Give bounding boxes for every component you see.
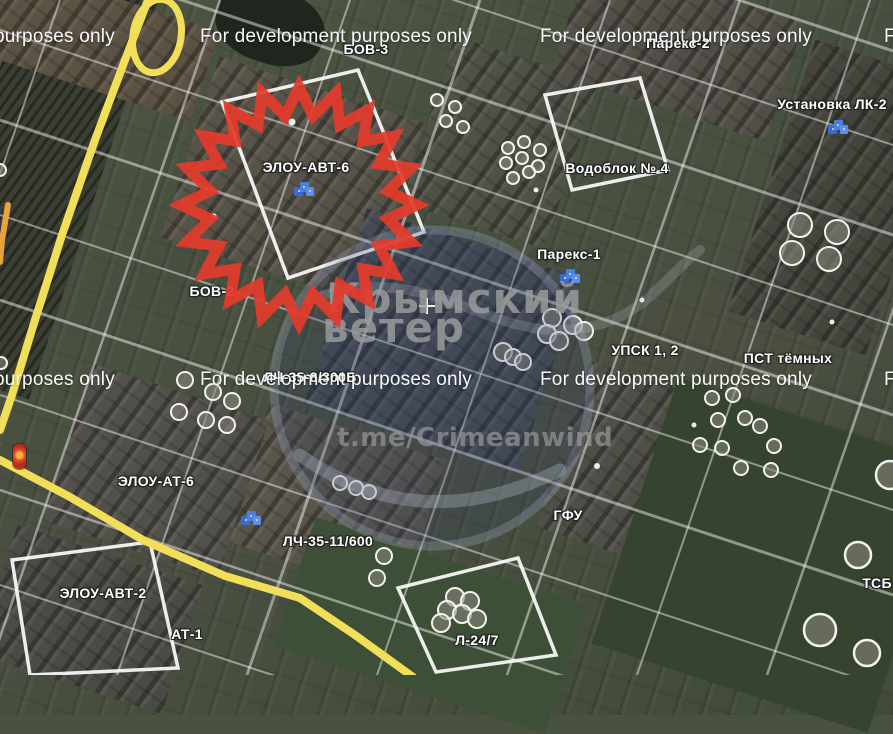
dev-watermark: For development purposes only [200,369,472,391]
map-label: Водоблок № 4 [565,160,668,176]
map-label: Установка ЛК-2 [777,96,887,112]
roundabout-loop [127,0,187,77]
map-label: ГФУ [554,507,583,523]
map-label: АТ-1 [171,626,203,642]
photo-marker-icon[interactable] [239,509,263,526]
map-label: ЭЛОУ-АВТ-2 [60,585,147,601]
dev-watermark: purposes only [0,369,115,391]
map-label: Парекс-1 [537,246,601,262]
dev-watermark: For development purposes only [884,26,893,48]
map-label: БОВ-2 [189,283,234,299]
dev-watermark: For development purposes only [884,369,893,391]
map-label: УПСК 1, 2 [611,342,678,358]
channel-watermark-url: t.me/Crimeanwind [337,423,613,453]
map-label: ТСБ [862,575,892,591]
flare-marker-icon[interactable] [13,444,26,469]
dev-watermark: For development purposes only [200,26,472,48]
channel-watermark-title-line2: ветер [322,307,465,349]
map-canvas[interactable]: БОВ-3 Парекс-2 Установка ЛК-2 ЭЛОУ-АВТ-6… [0,0,893,675]
photo-marker-icon[interactable] [292,180,316,197]
map-label: ЭЛОУ-АТ-6 [118,473,194,489]
map-label: ЛЧ-35-11/600 [283,533,373,549]
dev-watermark: purposes only [0,26,115,48]
map-label: ПСТ тёмных [744,350,832,366]
large-storage-tanks [804,461,893,666]
dev-watermark: For development purposes only [540,369,812,391]
satellite-map-screenshot: { "watermarks": { "dev_full": "For devel… [0,0,893,675]
photo-marker-icon[interactable] [826,118,850,135]
dev-watermark: For development purposes only [540,26,812,48]
map-label: ЭЛОУ-АВТ-6 [263,159,350,175]
map-label: Л-24/7 [455,632,499,648]
